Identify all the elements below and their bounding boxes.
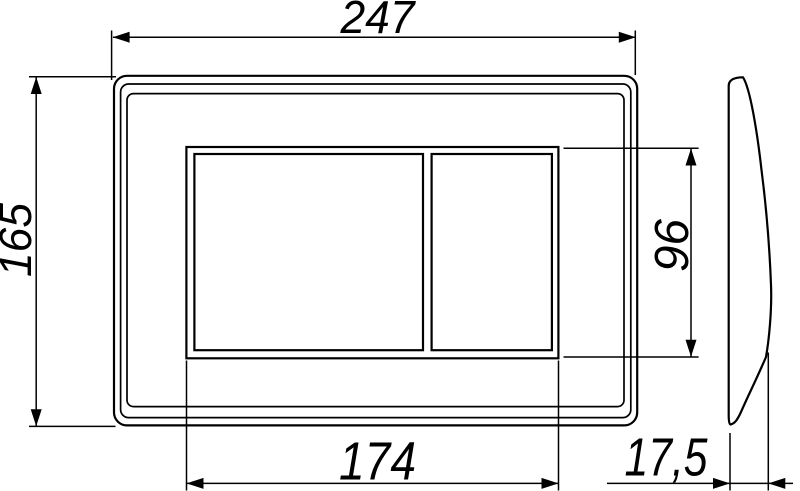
svg-text:17,5: 17,5 — [625, 428, 709, 488]
svg-text:96: 96 — [646, 219, 699, 272]
svg-text:174: 174 — [339, 432, 416, 491]
svg-text:247: 247 — [340, 0, 416, 43]
svg-text:165: 165 — [0, 202, 41, 277]
